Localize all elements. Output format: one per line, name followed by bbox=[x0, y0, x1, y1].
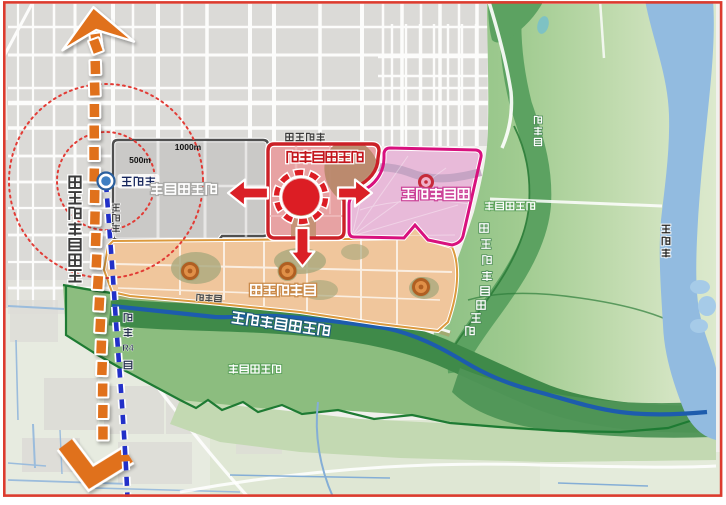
svg-text:R4: R4 bbox=[122, 343, 134, 353]
svg-text:500m: 500m bbox=[129, 155, 151, 165]
svg-text:1000m: 1000m bbox=[175, 142, 202, 152]
